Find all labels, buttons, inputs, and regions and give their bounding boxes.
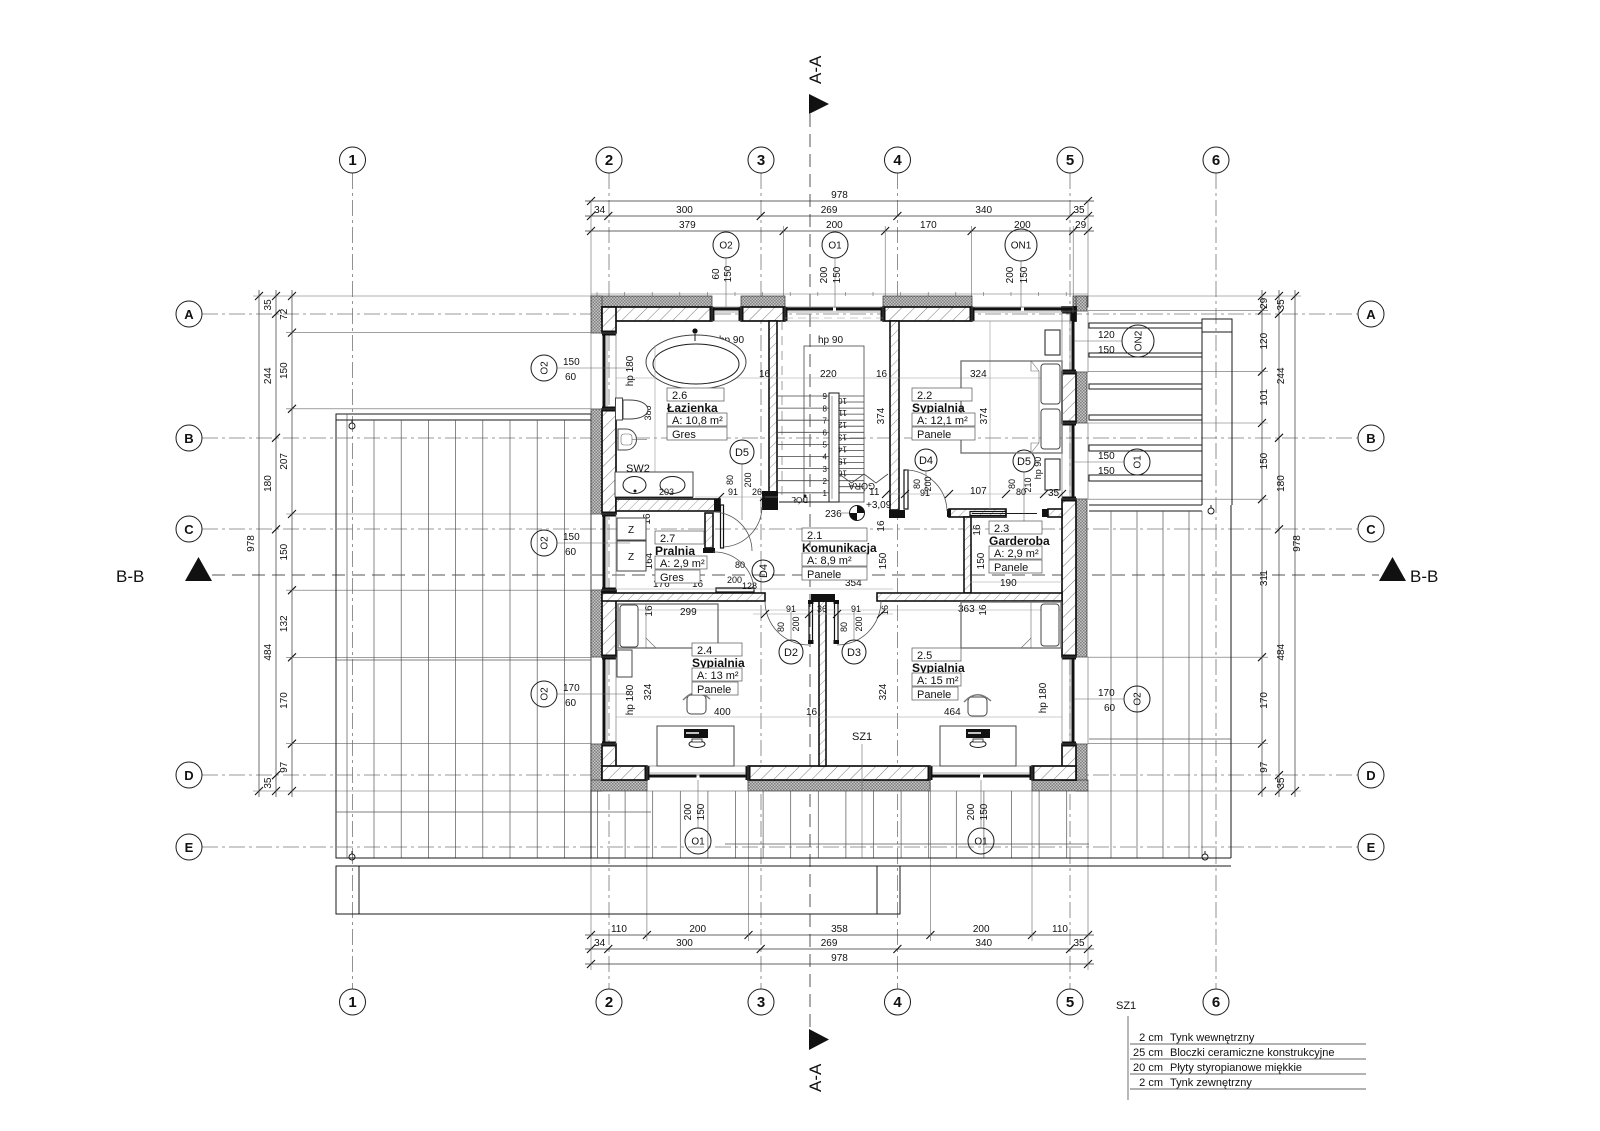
svg-text:36: 36 <box>817 604 827 614</box>
svg-text:16: 16 <box>806 707 818 718</box>
svg-text:107: 107 <box>970 486 987 497</box>
svg-text:9: 9 <box>823 392 828 401</box>
svg-text:101: 101 <box>1259 389 1270 406</box>
svg-text:B-B: B-B <box>116 567 144 586</box>
svg-text:A-A: A-A <box>806 1063 825 1092</box>
svg-text:20 cm: 20 cm <box>1133 1062 1163 1074</box>
svg-text:311: 311 <box>1259 570 1270 586</box>
svg-text:150: 150 <box>1098 466 1115 477</box>
svg-text:Tynk wewnętrzny: Tynk wewnętrzny <box>1170 1032 1255 1044</box>
svg-text:34: 34 <box>594 938 606 949</box>
svg-text:150: 150 <box>723 265 734 282</box>
svg-text:150: 150 <box>1098 345 1115 356</box>
svg-text:Panele: Panele <box>917 429 951 441</box>
svg-text:A: 10,8 m²: A: 10,8 m² <box>672 415 723 427</box>
svg-text:324: 324 <box>643 683 654 700</box>
svg-text:200: 200 <box>743 472 753 487</box>
svg-text:150: 150 <box>979 803 990 820</box>
svg-text:2: 2 <box>605 994 613 1011</box>
svg-text:200: 200 <box>683 803 694 820</box>
svg-text:91: 91 <box>851 604 861 614</box>
svg-text:80: 80 <box>839 622 849 632</box>
svg-text:35: 35 <box>263 777 274 789</box>
svg-text:80: 80 <box>776 622 786 632</box>
svg-text:B: B <box>184 431 193 446</box>
svg-text:O1: O1 <box>1133 455 1144 469</box>
svg-text:35: 35 <box>263 299 274 311</box>
svg-text:4: 4 <box>893 152 902 169</box>
svg-text:D3: D3 <box>847 647 861 659</box>
svg-text:16: 16 <box>759 369 771 380</box>
svg-text:A: 12,1 m²: A: 12,1 m² <box>917 415 968 427</box>
svg-text:200: 200 <box>1005 266 1016 283</box>
svg-text:80: 80 <box>912 479 922 489</box>
svg-text:324: 324 <box>878 683 889 700</box>
svg-text:128: 128 <box>742 581 757 591</box>
svg-text:91: 91 <box>786 604 796 614</box>
svg-text:180: 180 <box>1276 475 1287 492</box>
svg-text:B-B: B-B <box>1410 567 1438 586</box>
svg-text:60: 60 <box>711 268 722 280</box>
svg-text:2: 2 <box>605 152 613 169</box>
svg-text:200: 200 <box>689 924 706 935</box>
svg-text:16: 16 <box>972 524 983 536</box>
svg-text:120: 120 <box>1259 332 1270 349</box>
svg-text:200: 200 <box>966 803 977 820</box>
svg-text:13: 13 <box>838 432 847 441</box>
svg-text:150: 150 <box>563 357 580 368</box>
svg-text:E: E <box>1367 840 1376 855</box>
svg-text:150: 150 <box>878 552 889 569</box>
svg-text:200: 200 <box>923 476 933 491</box>
svg-text:203: 203 <box>659 487 674 497</box>
svg-text:374: 374 <box>876 407 887 424</box>
svg-text:B: B <box>1366 431 1375 446</box>
svg-text:3: 3 <box>757 994 765 1011</box>
svg-text:hp 90: hp 90 <box>1033 457 1043 480</box>
svg-text:SZ1: SZ1 <box>1116 1000 1136 1012</box>
svg-text:190: 190 <box>1000 578 1017 589</box>
svg-text:4: 4 <box>893 994 902 1011</box>
svg-text:60: 60 <box>1104 703 1116 714</box>
svg-text:O1: O1 <box>974 837 988 848</box>
svg-text:8: 8 <box>823 404 828 413</box>
svg-text:Bloczki ceramiczne konstrukcyj: Bloczki ceramiczne konstrukcyjne <box>1170 1047 1334 1059</box>
svg-text:7: 7 <box>823 416 828 425</box>
svg-text:Tynk zewnętrzny: Tynk zewnętrzny <box>1170 1077 1252 1089</box>
svg-text:14: 14 <box>838 444 847 453</box>
svg-text:Panele: Panele <box>807 569 841 581</box>
svg-text:978: 978 <box>831 190 848 201</box>
svg-text:Z: Z <box>628 552 634 563</box>
svg-text:11: 11 <box>869 487 880 498</box>
svg-text:2: 2 <box>823 477 828 486</box>
svg-text:150: 150 <box>279 362 290 379</box>
svg-text:60: 60 <box>565 698 577 709</box>
svg-text:29: 29 <box>1075 220 1087 231</box>
svg-text:5: 5 <box>1066 994 1074 1011</box>
svg-text:Panele: Panele <box>697 684 731 696</box>
svg-text:C: C <box>184 522 194 537</box>
svg-text:207: 207 <box>279 453 290 470</box>
svg-text:110: 110 <box>1052 924 1068 935</box>
svg-text:300: 300 <box>676 938 693 949</box>
svg-text:97: 97 <box>1259 761 1270 773</box>
svg-text:484: 484 <box>1276 643 1287 660</box>
svg-text:484: 484 <box>263 643 274 660</box>
svg-text:D5: D5 <box>1017 456 1031 468</box>
svg-text:132: 132 <box>279 615 290 632</box>
svg-text:15: 15 <box>838 457 847 466</box>
svg-text:6: 6 <box>823 429 828 438</box>
svg-text:O2: O2 <box>719 241 733 252</box>
svg-text:150: 150 <box>976 552 987 569</box>
svg-text:Z: Z <box>628 525 634 536</box>
svg-text:374: 374 <box>979 407 990 424</box>
svg-text:hp 180: hp 180 <box>625 684 636 715</box>
svg-text:35: 35 <box>1276 299 1287 311</box>
svg-text:O2: O2 <box>540 536 551 550</box>
svg-text:SZ1: SZ1 <box>852 731 872 743</box>
svg-text:C: C <box>1366 522 1376 537</box>
svg-text:2 cm: 2 cm <box>1139 1032 1163 1044</box>
svg-text:200: 200 <box>791 616 801 631</box>
svg-text:978: 978 <box>831 953 848 964</box>
svg-text:72: 72 <box>279 308 290 320</box>
svg-text:300: 300 <box>676 205 693 216</box>
svg-text:150: 150 <box>279 543 290 560</box>
svg-text:150: 150 <box>563 532 580 543</box>
svg-text:60: 60 <box>565 372 577 383</box>
svg-text:150: 150 <box>696 803 707 820</box>
svg-text:25 cm: 25 cm <box>1133 1047 1163 1059</box>
svg-text:O1: O1 <box>691 837 705 848</box>
svg-text:269: 269 <box>821 205 838 216</box>
svg-text:A: 2,9 m²: A: 2,9 m² <box>660 558 705 570</box>
svg-text:Gres: Gres <box>660 572 684 584</box>
svg-text:220: 220 <box>820 369 837 380</box>
svg-text:O2: O2 <box>540 687 551 701</box>
svg-text:150: 150 <box>1259 452 1270 469</box>
svg-text:5: 5 <box>1066 152 1074 169</box>
svg-text:200: 200 <box>819 266 830 283</box>
svg-text:ON2: ON2 <box>1134 330 1145 351</box>
svg-text:2 cm: 2 cm <box>1139 1077 1163 1089</box>
svg-text:D: D <box>1366 768 1375 783</box>
svg-text:170: 170 <box>920 220 937 231</box>
svg-text:E: E <box>185 840 194 855</box>
svg-text:340: 340 <box>975 938 992 949</box>
svg-text:A: 15 m²: A: 15 m² <box>917 675 959 687</box>
svg-text:464: 464 <box>944 707 961 718</box>
svg-text:150: 150 <box>832 266 843 283</box>
svg-text:ON1: ON1 <box>1011 241 1032 252</box>
svg-text:170: 170 <box>1259 692 1270 709</box>
svg-text:200: 200 <box>973 924 990 935</box>
svg-text:A: A <box>184 307 194 322</box>
svg-text:180: 180 <box>263 475 274 492</box>
svg-text:170: 170 <box>1098 688 1115 699</box>
svg-text:80: 80 <box>725 475 735 485</box>
svg-text:1: 1 <box>348 994 356 1011</box>
svg-text:6: 6 <box>1212 152 1220 169</box>
svg-text:200: 200 <box>727 575 742 585</box>
svg-text:97: 97 <box>279 761 290 773</box>
svg-text:16: 16 <box>876 520 887 532</box>
svg-text:91: 91 <box>728 487 738 497</box>
svg-text:16: 16 <box>644 605 655 617</box>
svg-text:35: 35 <box>1073 205 1085 216</box>
svg-text:12: 12 <box>838 420 847 429</box>
svg-text:60: 60 <box>565 547 577 558</box>
svg-text:Gres: Gres <box>672 429 696 441</box>
svg-text:150: 150 <box>1019 266 1030 283</box>
svg-text:Panele: Panele <box>994 562 1028 574</box>
svg-text:Panele: Panele <box>917 689 951 701</box>
svg-text:10: 10 <box>838 396 847 405</box>
svg-text:D5: D5 <box>735 447 749 459</box>
svg-text:80: 80 <box>735 560 745 570</box>
svg-text:O2: O2 <box>540 361 551 375</box>
svg-text:978: 978 <box>1292 535 1303 552</box>
svg-text:324: 324 <box>970 369 987 380</box>
svg-text:35: 35 <box>1276 777 1287 789</box>
svg-text:29: 29 <box>1259 297 1270 309</box>
svg-text:hp 90: hp 90 <box>818 335 843 346</box>
svg-text:150: 150 <box>1098 451 1115 462</box>
svg-text:110: 110 <box>611 924 627 935</box>
svg-text:269: 269 <box>821 938 838 949</box>
svg-text:D4: D4 <box>919 455 933 467</box>
svg-text:A-A: A-A <box>806 55 825 84</box>
svg-text:6: 6 <box>1212 994 1220 1011</box>
svg-text:D2: D2 <box>784 647 798 659</box>
svg-text:D: D <box>184 768 193 783</box>
svg-text:1: 1 <box>348 152 356 169</box>
svg-text:35: 35 <box>1073 938 1085 949</box>
svg-text:358: 358 <box>831 924 848 935</box>
svg-text:200: 200 <box>854 616 864 631</box>
svg-text:244: 244 <box>263 367 274 384</box>
svg-text:34: 34 <box>594 205 606 216</box>
svg-text:D4: D4 <box>758 564 770 578</box>
svg-text:170: 170 <box>563 683 580 694</box>
svg-text:236: 236 <box>825 509 842 520</box>
svg-text:170: 170 <box>279 692 290 709</box>
svg-text:SW2: SW2 <box>626 463 650 475</box>
svg-text:16: 16 <box>978 604 989 616</box>
svg-text:11: 11 <box>838 408 847 417</box>
svg-text:A: 8,9 m²: A: 8,9 m² <box>807 555 852 567</box>
svg-text:400: 400 <box>714 707 731 718</box>
svg-text:O1: O1 <box>828 241 842 252</box>
svg-text:3: 3 <box>757 152 765 169</box>
svg-text:5: 5 <box>823 441 828 450</box>
svg-text:120: 120 <box>1098 330 1115 341</box>
svg-text:+3,09: +3,09 <box>866 500 892 511</box>
svg-text:A: 13 m²: A: 13 m² <box>697 670 739 682</box>
svg-text:hp 180: hp 180 <box>625 355 636 386</box>
svg-text:A: 2,9 m²: A: 2,9 m² <box>994 548 1039 560</box>
svg-text:26: 26 <box>752 487 762 497</box>
svg-text:A: A <box>1366 307 1376 322</box>
svg-text:299: 299 <box>680 607 697 618</box>
svg-text:978: 978 <box>246 535 257 552</box>
svg-text:379: 379 <box>679 220 696 231</box>
svg-text:200: 200 <box>826 220 843 231</box>
svg-text:3: 3 <box>823 465 828 474</box>
svg-text:340: 340 <box>975 205 992 216</box>
svg-text:hp 180: hp 180 <box>1038 682 1049 713</box>
svg-text:Płyty styropianowe miękkie: Płyty styropianowe miękkie <box>1170 1062 1302 1074</box>
svg-text:1: 1 <box>823 489 828 498</box>
svg-text:4: 4 <box>823 453 828 462</box>
svg-text:80: 80 <box>1016 487 1026 497</box>
svg-text:O2: O2 <box>1133 692 1144 706</box>
svg-text:16: 16 <box>876 369 888 380</box>
svg-text:244: 244 <box>1276 367 1287 384</box>
